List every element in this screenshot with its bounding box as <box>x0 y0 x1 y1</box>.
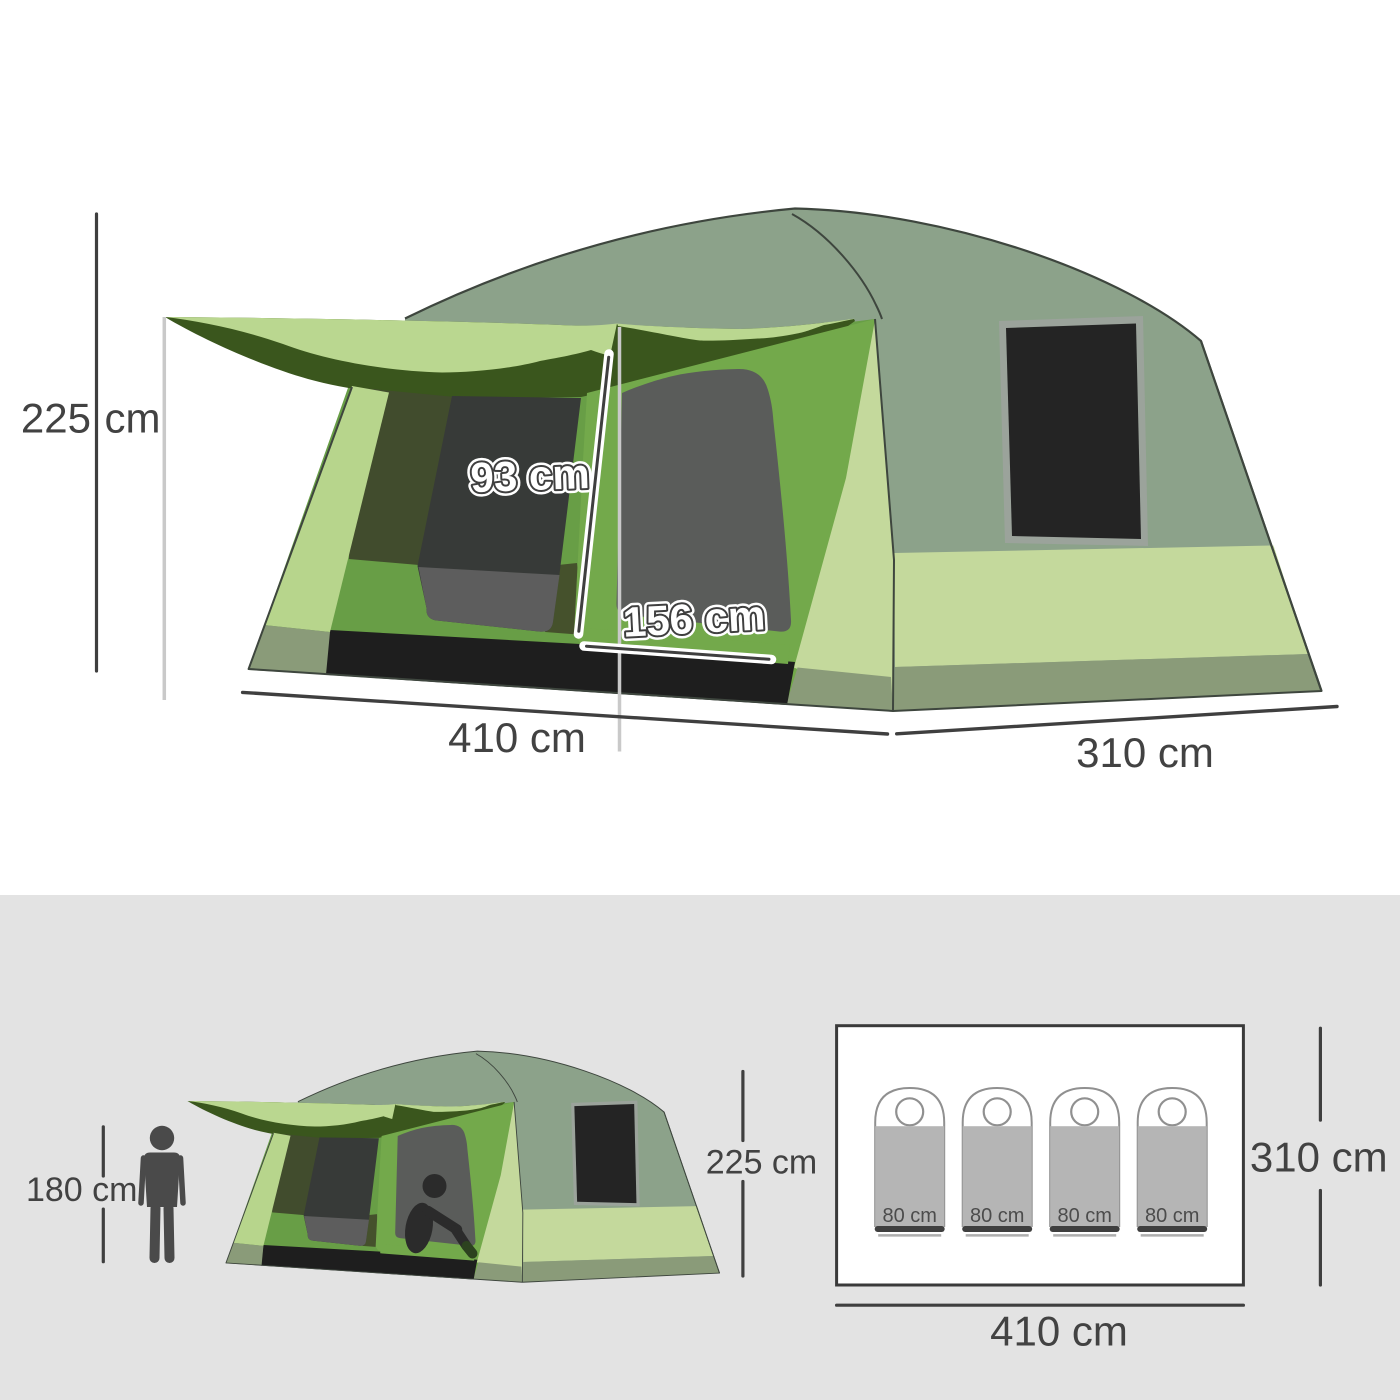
svg-text:180 cm: 180 cm <box>26 1171 138 1209</box>
svg-text:225 cm: 225 cm <box>706 1144 818 1182</box>
svg-text:225: 225 <box>21 395 91 442</box>
svg-text:cm: cm <box>105 395 161 442</box>
svg-text:93 cm: 93 cm <box>470 450 591 501</box>
svg-text:410 cm: 410 cm <box>990 1307 1128 1354</box>
svg-text:310 cm: 310 cm <box>1076 729 1214 776</box>
svg-text:156 cm: 156 cm <box>622 591 767 645</box>
svg-text:310 cm: 310 cm <box>1250 1134 1388 1181</box>
svg-text:410 cm: 410 cm <box>448 714 586 761</box>
